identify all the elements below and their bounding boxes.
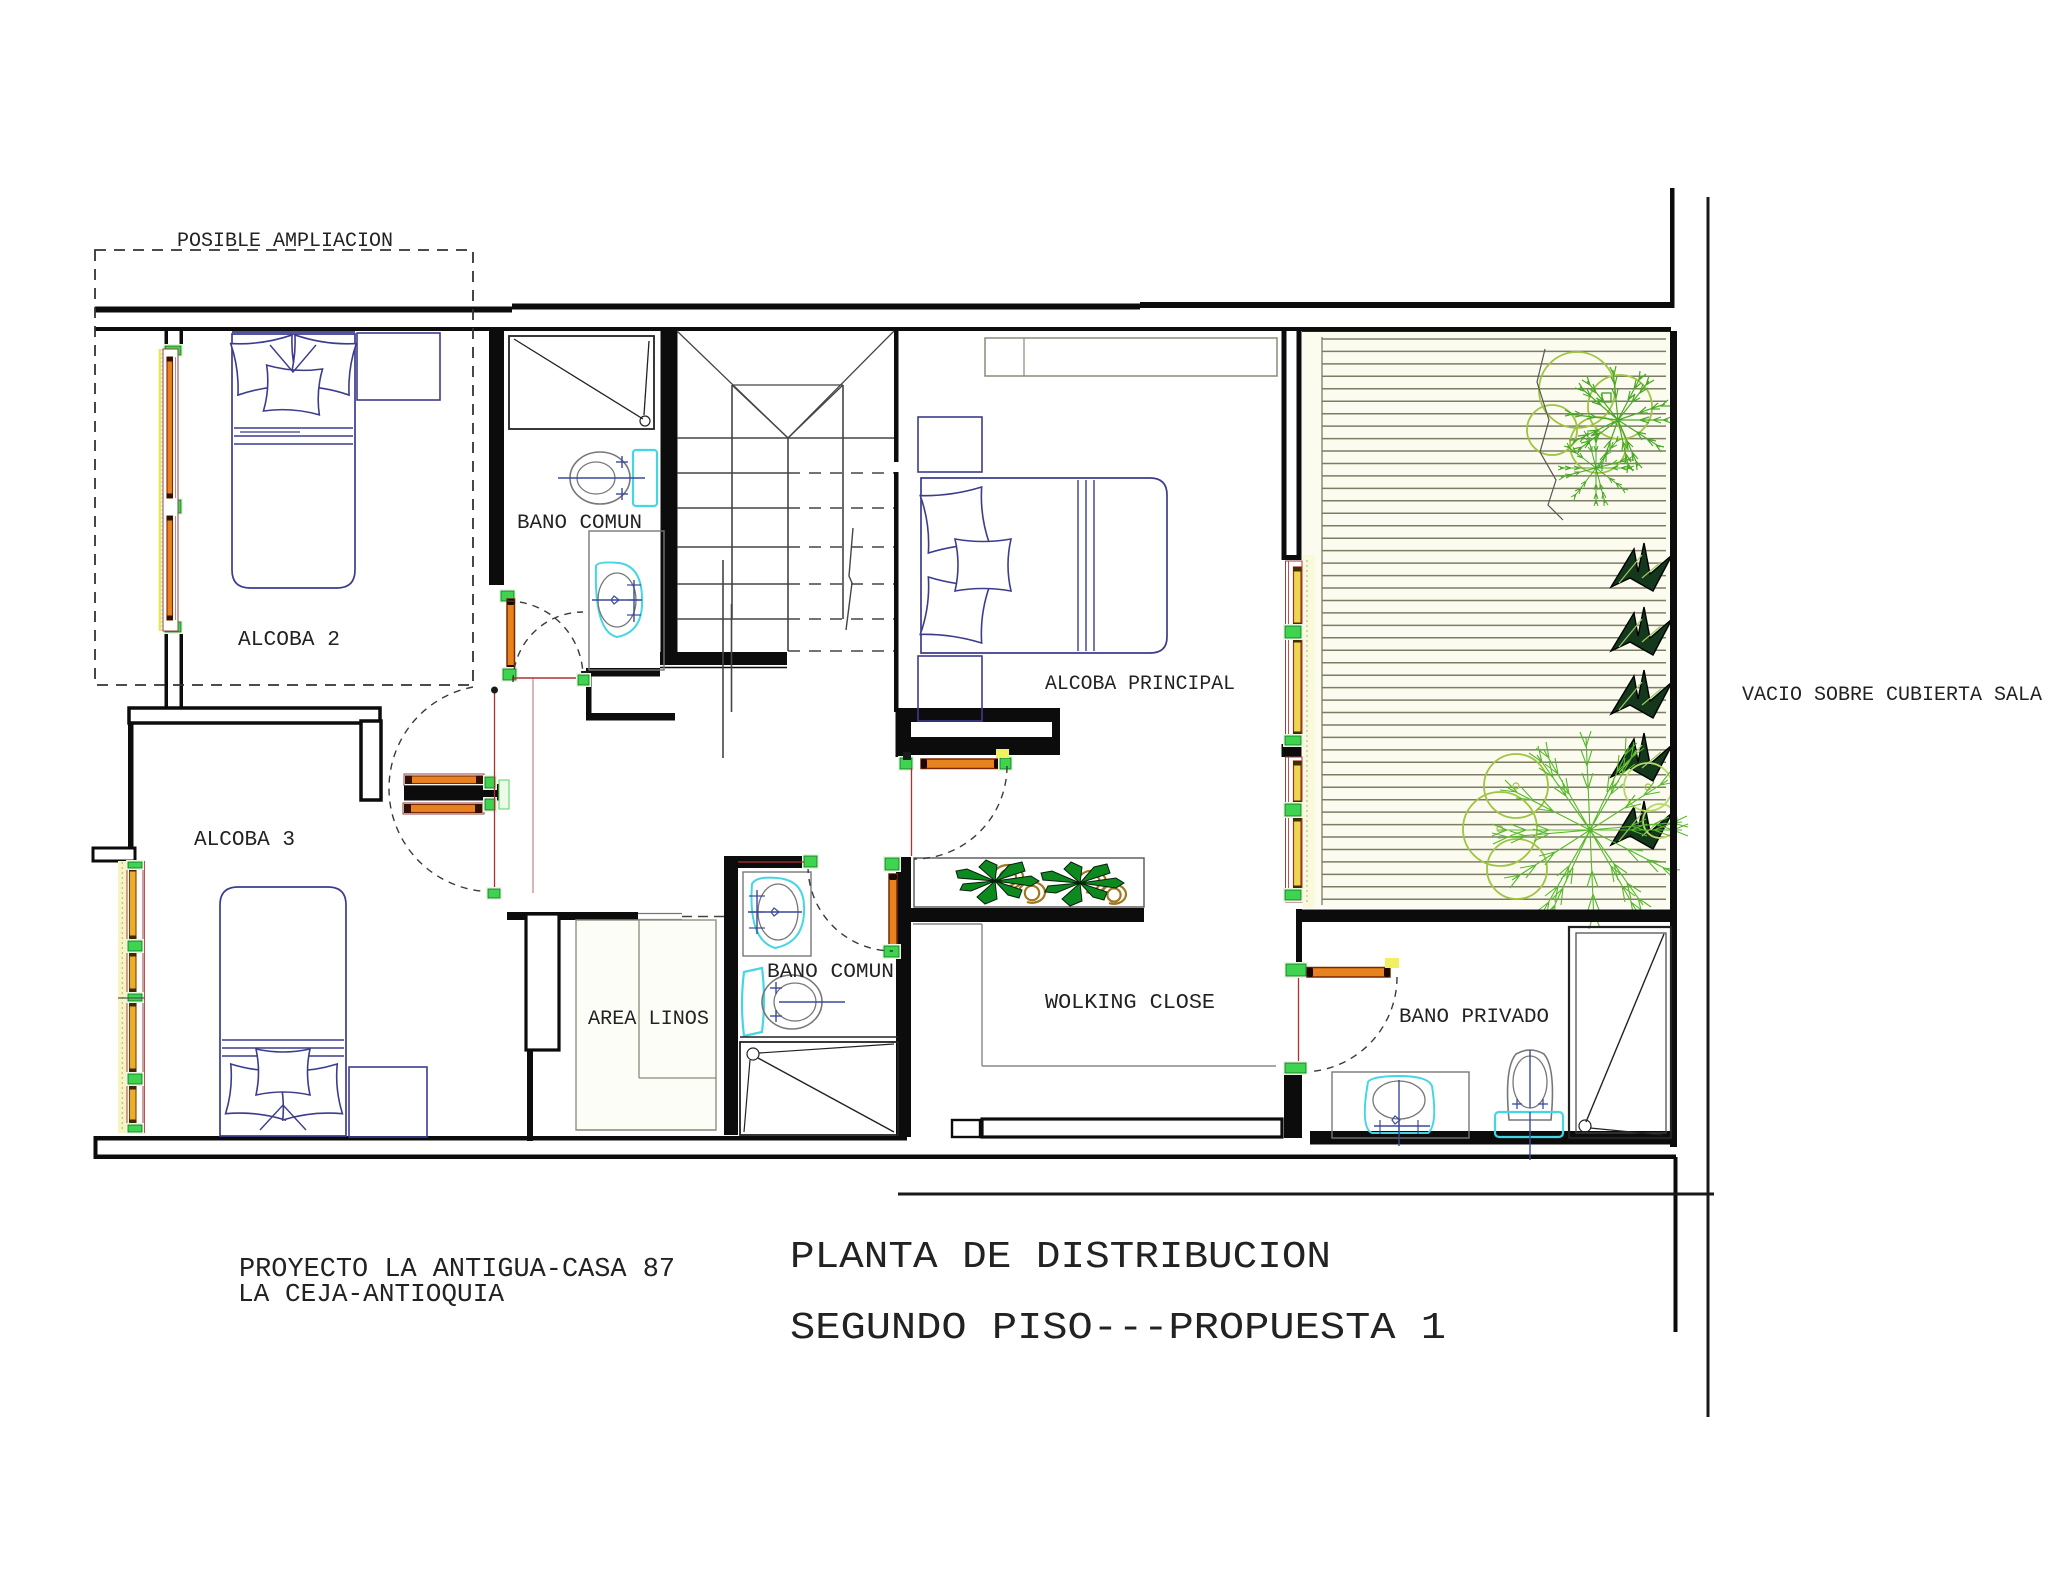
svg-text:ALCOBA 2: ALCOBA 2: [238, 629, 340, 652]
svg-text:BANO COMUN: BANO COMUN: [767, 961, 894, 984]
svg-text:SEGUNDO PISO---PROPUESTA 1: SEGUNDO PISO---PROPUESTA 1: [790, 1307, 1446, 1350]
svg-text:AREA LINOS: AREA LINOS: [588, 1008, 709, 1031]
svg-text:ALCOBA PRINCIPAL: ALCOBA PRINCIPAL: [1045, 673, 1235, 696]
svg-text:BANO PRIVADO: BANO PRIVADO: [1399, 1006, 1549, 1029]
svg-text:POSIBLE AMPLIACION: POSIBLE AMPLIACION: [177, 230, 393, 253]
svg-text:WOLKING CLOSE: WOLKING CLOSE: [1045, 992, 1215, 1015]
svg-text:LA CEJA-ANTIOQUIA: LA CEJA-ANTIOQUIA: [238, 1279, 504, 1309]
svg-text:ALCOBA 3: ALCOBA 3: [194, 829, 295, 852]
svg-text:PLANTA DE DISTRIBUCION: PLANTA DE DISTRIBUCION: [790, 1236, 1331, 1279]
svg-text:VACIO SOBRE CUBIERTA SALA: VACIO SOBRE CUBIERTA SALA: [1742, 684, 2042, 707]
svg-text:BANO COMUN: BANO COMUN: [517, 512, 642, 535]
